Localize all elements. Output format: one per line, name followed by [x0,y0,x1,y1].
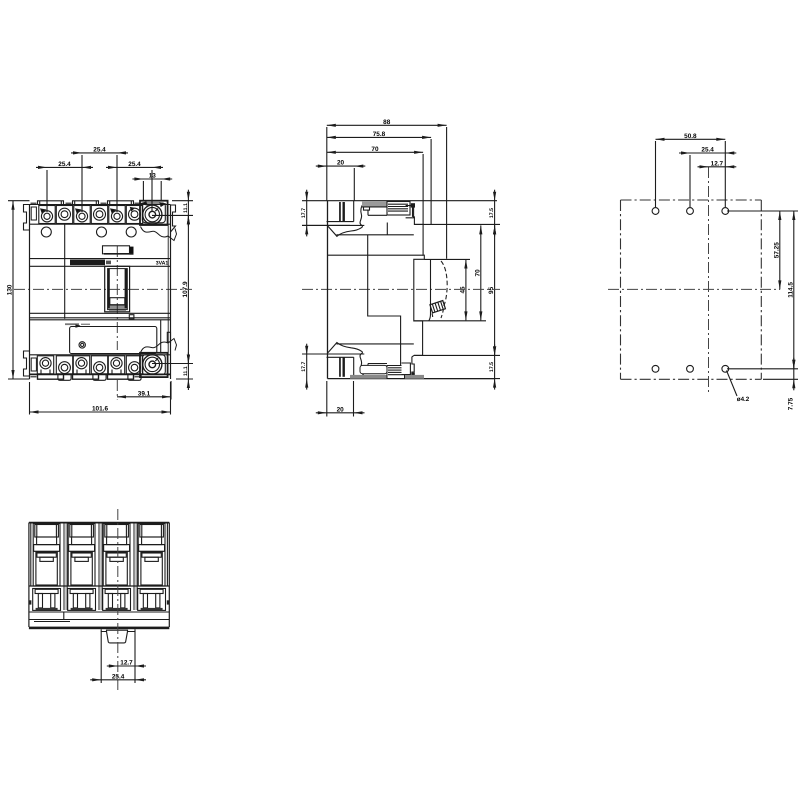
svg-text:88: 88 [383,119,391,126]
svg-text:114.5: 114.5 [787,282,794,298]
svg-text:ø4.2: ø4.2 [737,396,750,403]
svg-text:57.25: 57.25 [773,242,780,258]
svg-text:12.7: 12.7 [711,160,724,167]
svg-text:25.4: 25.4 [58,161,71,168]
svg-text:70: 70 [474,269,481,277]
svg-text:39.1: 39.1 [138,390,151,397]
svg-text:7.75: 7.75 [787,397,794,410]
svg-text:25.4: 25.4 [128,161,141,168]
svg-text:12.7: 12.7 [120,660,133,667]
svg-text:17.7: 17.7 [301,208,307,218]
svg-text:130: 130 [7,284,14,295]
svg-text:75.8: 75.8 [373,131,386,138]
svg-text:3VA1: 3VA1 [156,261,169,267]
svg-text:70: 70 [371,146,379,153]
svg-text:20: 20 [337,160,345,167]
svg-text:101.6: 101.6 [92,406,108,413]
svg-text:95: 95 [488,286,495,294]
svg-text:25.4: 25.4 [701,147,714,154]
svg-text:20: 20 [337,406,345,413]
svg-text:17.5: 17.5 [489,362,495,372]
svg-text:11.1: 11.1 [183,366,189,376]
svg-text:17.5: 17.5 [489,208,495,218]
svg-text:17.7: 17.7 [301,361,307,371]
svg-text:25.4: 25.4 [112,673,125,680]
svg-text:25.4: 25.4 [93,146,106,153]
svg-text:11.1: 11.1 [183,203,189,213]
svg-text:50.8: 50.8 [684,133,697,140]
